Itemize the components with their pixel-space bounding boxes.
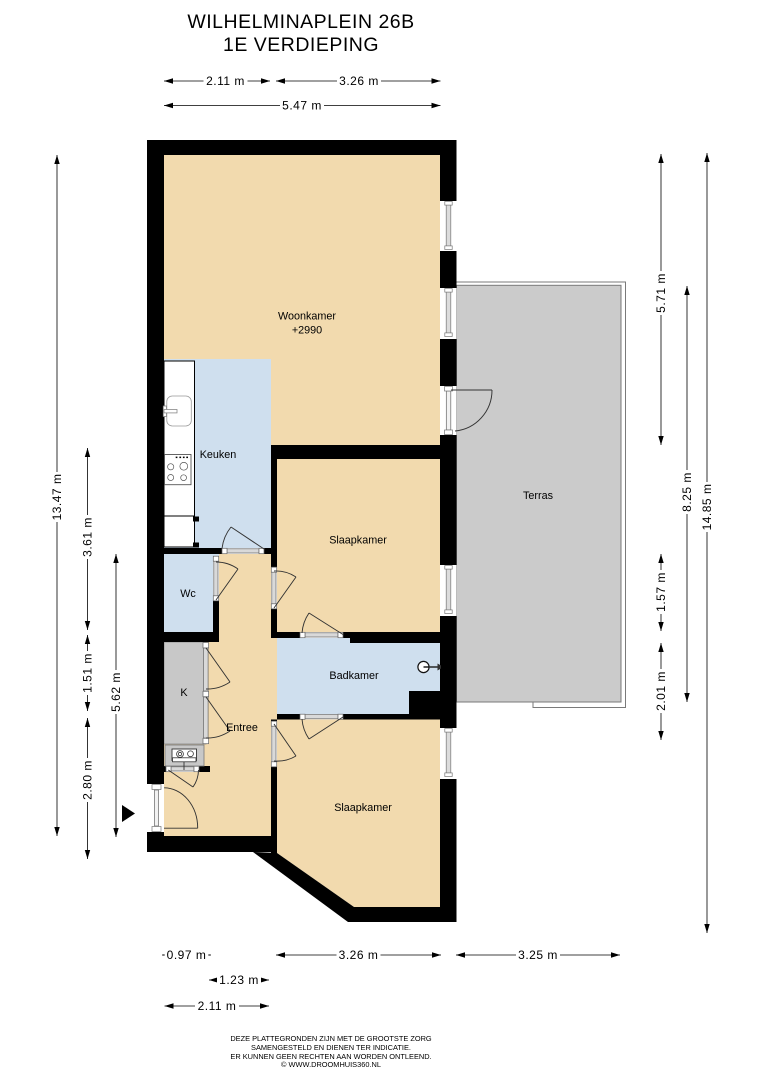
svg-text:© WWW.DROOMHUIS360.NL: © WWW.DROOMHUIS360.NL (281, 1060, 381, 1069)
svg-text:5.71 m: 5.71 m (654, 273, 668, 313)
svg-text:1.57 m: 1.57 m (654, 572, 668, 612)
svg-text:2.11 m: 2.11 m (206, 74, 245, 88)
svg-text:2.11 m: 2.11 m (198, 999, 237, 1013)
svg-text:1.51 m: 1.51 m (81, 653, 95, 693)
svg-text:+2990: +2990 (292, 325, 322, 337)
svg-text:14.85 m: 14.85 m (700, 484, 714, 531)
svg-text:2.80 m: 2.80 m (81, 760, 95, 800)
svg-text:Slaapkamer: Slaapkamer (329, 535, 387, 547)
svg-text:K: K (180, 687, 188, 699)
svg-text:Woonkamer: Woonkamer (278, 311, 336, 323)
svg-text:DEZE PLATTEGRONDEN ZIJN MET DE: DEZE PLATTEGRONDEN ZIJN MET DE GROOTSTE … (230, 1034, 432, 1043)
svg-text:0.97 m: 0.97 m (167, 948, 207, 962)
svg-text:3.26 m: 3.26 m (339, 74, 379, 88)
svg-text:Entree: Entree (226, 722, 258, 734)
svg-text:13.47 m: 13.47 m (50, 474, 64, 521)
svg-text:5.47 m: 5.47 m (282, 99, 322, 113)
svg-text:1E VERDIEPING: 1E VERDIEPING (223, 34, 379, 56)
svg-text:8.25 m: 8.25 m (680, 472, 694, 512)
svg-text:Keuken: Keuken (200, 449, 237, 461)
svg-text:Badkamer: Badkamer (329, 670, 379, 682)
svg-text:SAMENGESTELD EN DIENEN TER IND: SAMENGESTELD EN DIENEN TER INDICATIE. (251, 1043, 411, 1052)
svg-text:5.62 m: 5.62 m (109, 672, 123, 712)
svg-text:Terras: Terras (523, 490, 554, 502)
svg-text:1.23 m: 1.23 m (219, 973, 259, 987)
svg-text:2.01 m: 2.01 m (654, 671, 668, 711)
svg-text:3.61 m: 3.61 m (81, 517, 95, 557)
svg-text:Wc: Wc (180, 588, 196, 600)
svg-text:3.26 m: 3.26 m (339, 948, 379, 962)
svg-text:3.25 m: 3.25 m (518, 948, 558, 962)
svg-text:WILHELMINAPLEIN 26B: WILHELMINAPLEIN 26B (187, 11, 414, 33)
svg-text:Slaapkamer: Slaapkamer (334, 802, 392, 814)
